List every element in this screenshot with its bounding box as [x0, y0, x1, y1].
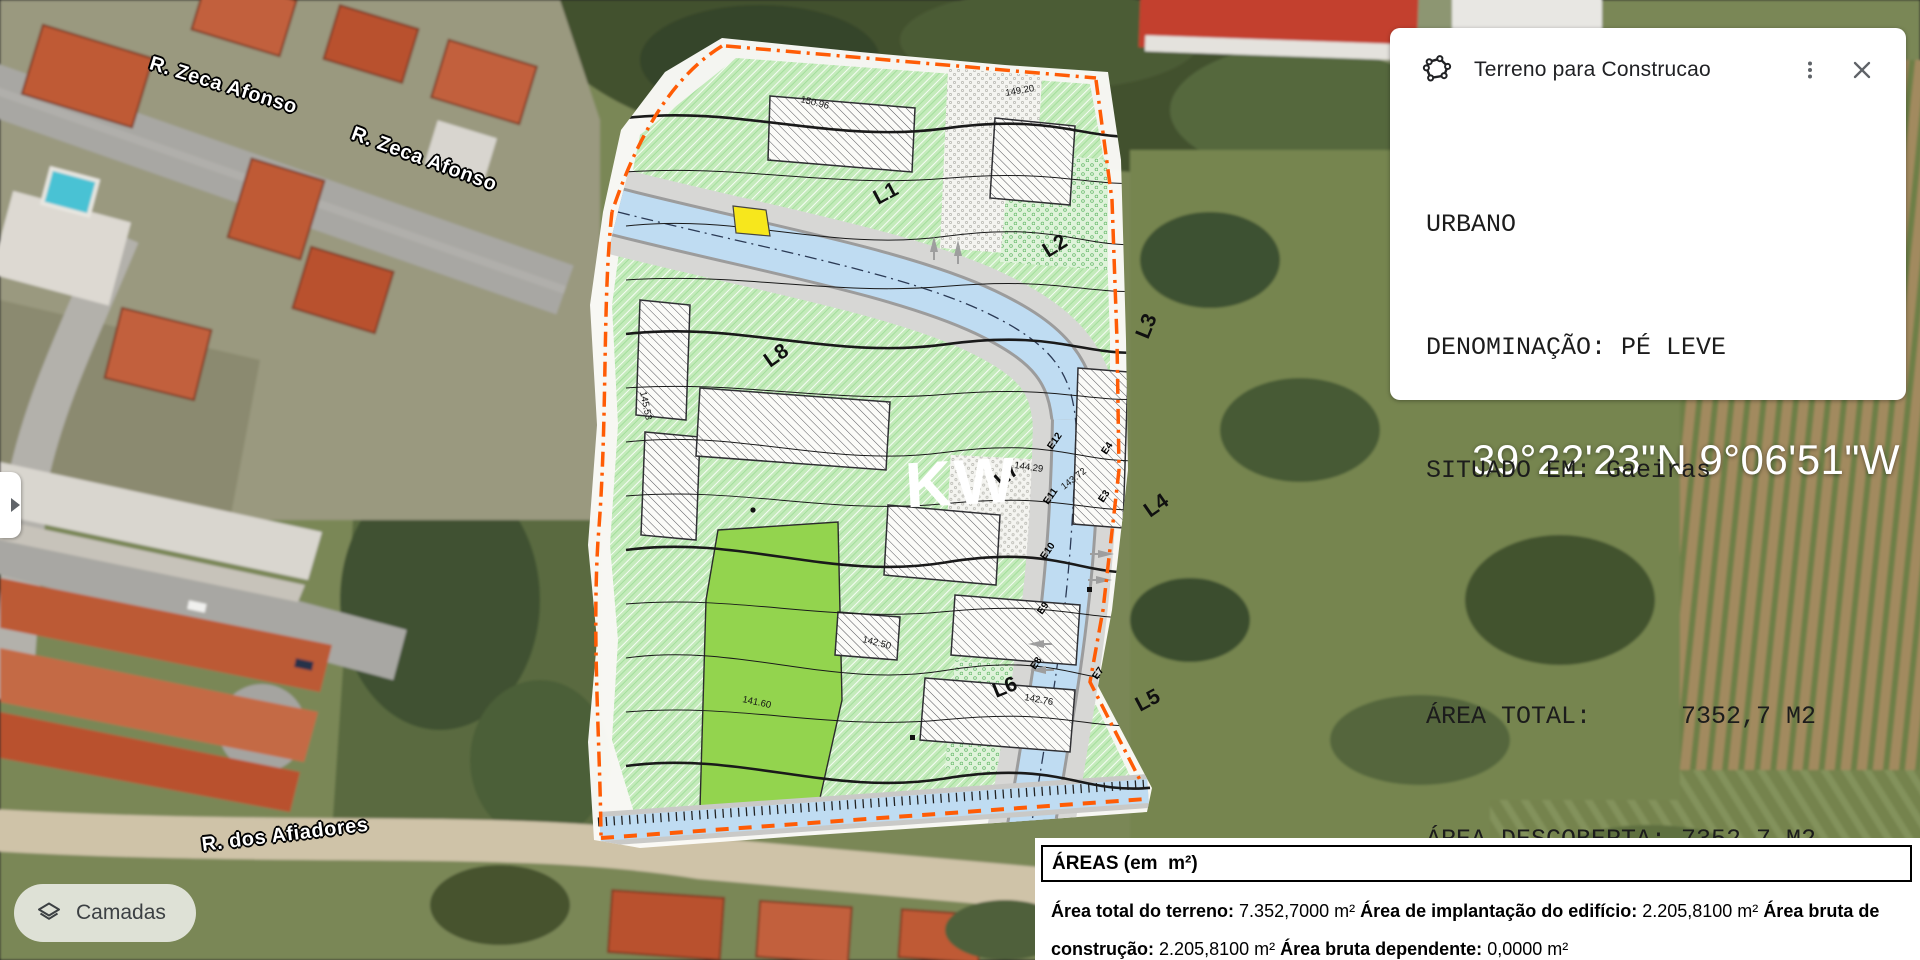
card-body: URBANO DENOMINAÇÃO: PÉ LEVE SITUADO EM: …: [1426, 122, 1906, 942]
area-field-label: Área bruta dependente:: [1280, 939, 1482, 959]
location-line: SITUADO EM: Gaeiras: [1426, 450, 1906, 491]
card-close-button[interactable]: [1844, 52, 1880, 88]
areas-panel-body: Área total do terreno: 7.352,7000 m² Áre…: [1041, 882, 1912, 960]
layers-button[interactable]: Camadas: [14, 884, 196, 942]
card-title: Terreno para Construcao: [1474, 58, 1794, 82]
layers-button-label: Camadas: [76, 901, 166, 925]
polygon-icon: [1420, 53, 1454, 87]
card-header: Terreno para Construcao: [1390, 28, 1906, 88]
area-total-line: ÁREA TOTAL: 7352,7 M2: [1426, 696, 1906, 737]
property-type-line: URBANO: [1426, 204, 1906, 245]
chevron-right-icon: [11, 498, 20, 512]
placemark-info-card: Terreno para Construcao URBANO DENOMINAÇ…: [1390, 28, 1906, 400]
area-field-label: Área de implantação do edifício:: [1360, 901, 1637, 921]
areas-summary-panel: ÁREAS (em m²) Área total do terreno: 7.3…: [1035, 838, 1920, 960]
area-field-value: 2.205,8100 m²: [1159, 939, 1275, 959]
close-icon: [1848, 56, 1876, 84]
area-field-value: 2.205,8100 m²: [1642, 901, 1758, 921]
plan-yellow-parcel: [733, 206, 770, 236]
card-menu-button[interactable]: [1794, 54, 1826, 86]
three-dot-menu-icon: [1798, 58, 1822, 82]
kw-watermark: KW: [903, 444, 1019, 522]
areas-panel-header: ÁREAS (em m²): [1041, 845, 1912, 882]
denomination-line: DENOMINAÇÃO: PÉ LEVE: [1426, 327, 1906, 368]
google-earth-window: L1 L2 L3 L4 L5 L6 L7 L8 E12 E11 E10 E9 E…: [0, 0, 1920, 960]
layers-icon: [36, 900, 62, 926]
area-field-label: Área total do terreno:: [1051, 901, 1234, 921]
site-plan-overlay[interactable]: L1 L2 L3 L4 L5 L6 L7 L8 E12 E11 E10 E9 E…: [588, 38, 1173, 848]
area-field-value: 7.352,7000 m²: [1239, 901, 1355, 921]
side-panel-toggle[interactable]: [0, 472, 21, 538]
area-field-value: 0,0000 m²: [1487, 939, 1568, 959]
